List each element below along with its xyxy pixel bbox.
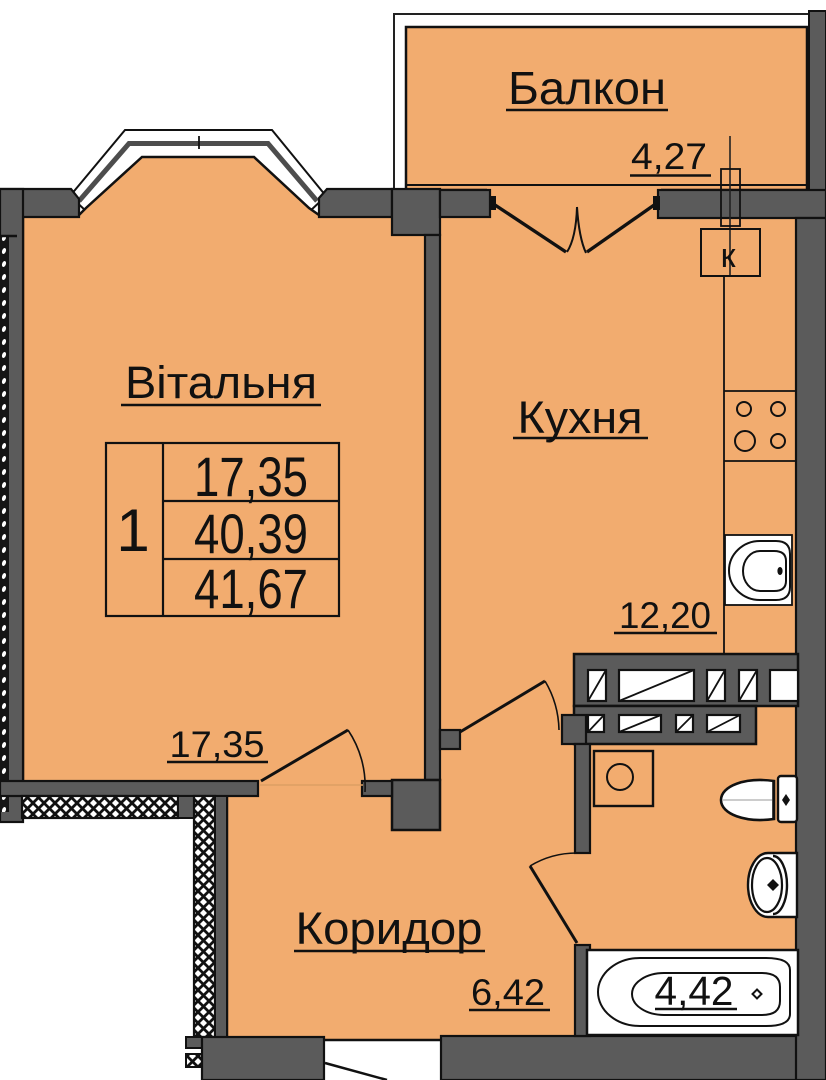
svg-text:Коридор: Коридор — [296, 903, 483, 954]
svg-text:40,39: 40,39 — [194, 502, 308, 565]
svg-text:Кухня: Кухня — [518, 392, 643, 443]
svg-text:к: к — [721, 237, 737, 275]
svg-text:41,67: 41,67 — [194, 557, 308, 620]
svg-text:17,35: 17,35 — [194, 445, 308, 508]
svg-text:Балкон: Балкон — [508, 62, 666, 114]
svg-text:6,42: 6,42 — [471, 972, 545, 1013]
svg-text:4,42: 4,42 — [655, 968, 734, 1014]
svg-text:1: 1 — [116, 497, 149, 564]
svg-text:4,27: 4,27 — [631, 136, 707, 177]
svg-text:17,35: 17,35 — [170, 724, 265, 765]
svg-text:12,20: 12,20 — [619, 595, 711, 636]
svg-text:Вітальня: Вітальня — [125, 357, 317, 408]
